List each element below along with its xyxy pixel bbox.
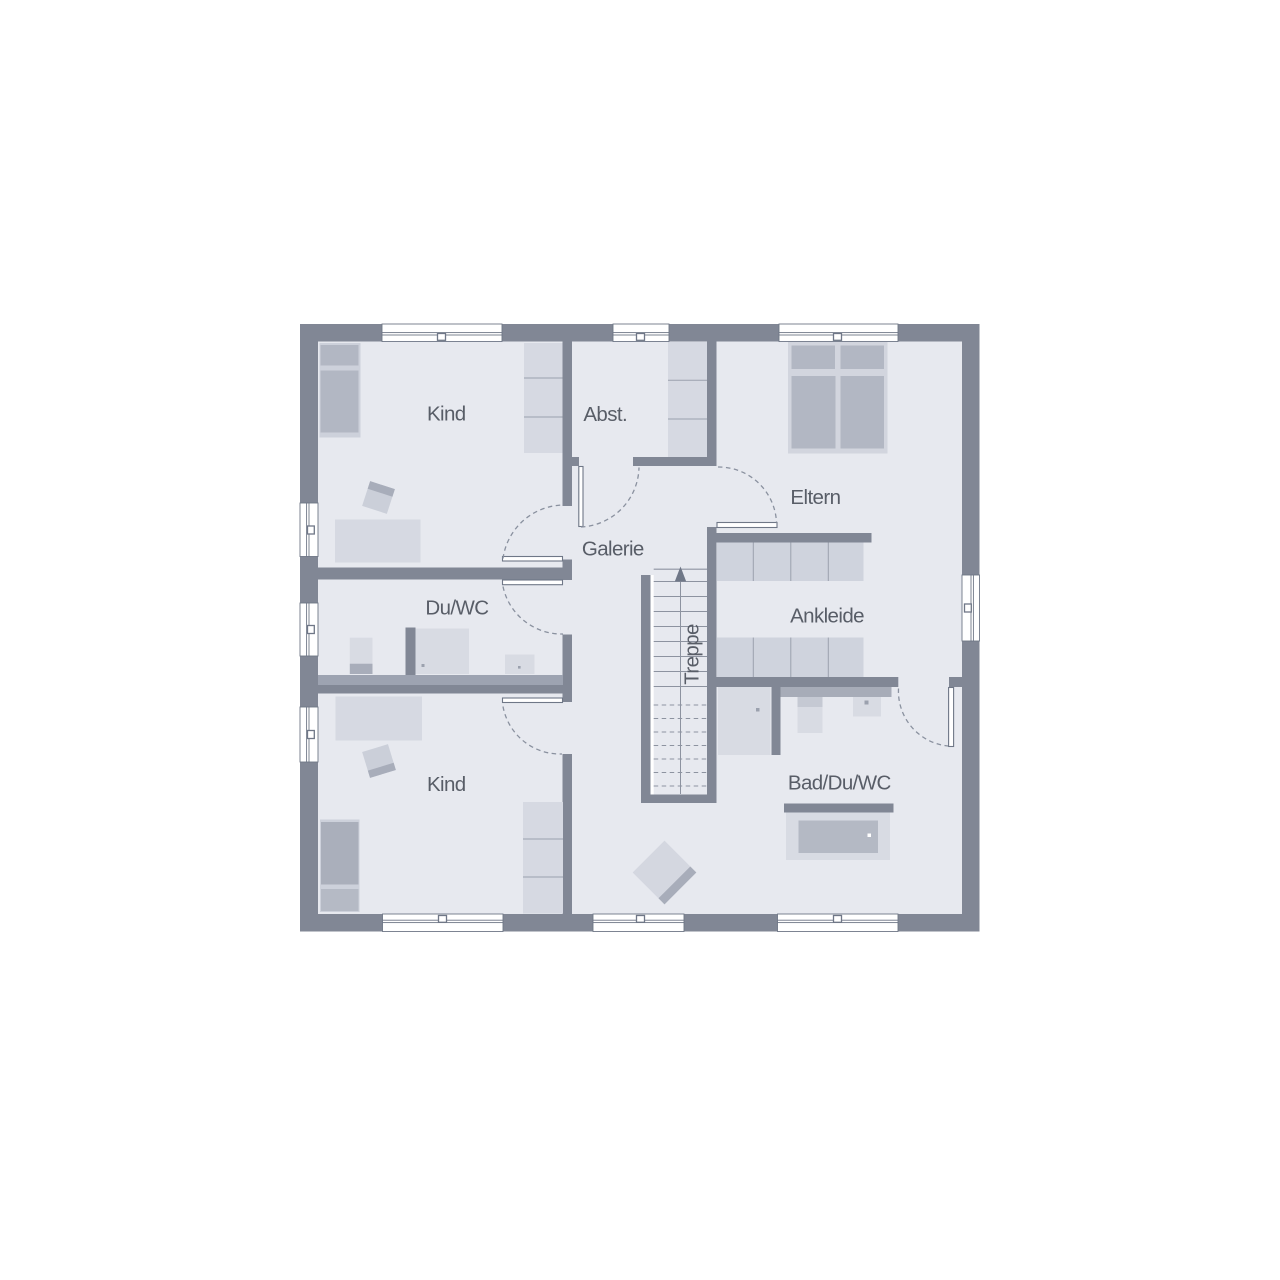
svg-text:Treppe: Treppe — [681, 624, 704, 685]
svg-text:Kind: Kind — [427, 403, 466, 426]
svg-text:Galerie: Galerie — [582, 538, 644, 561]
svg-text:Eltern: Eltern — [790, 486, 840, 509]
svg-text:Du/WC: Du/WC — [425, 597, 489, 620]
svg-text:Kind: Kind — [427, 773, 466, 796]
svg-text:Bad/Du/WC: Bad/Du/WC — [788, 772, 892, 795]
svg-text:Ankleide: Ankleide — [790, 605, 864, 628]
svg-text:Abst.: Abst. — [583, 403, 627, 426]
